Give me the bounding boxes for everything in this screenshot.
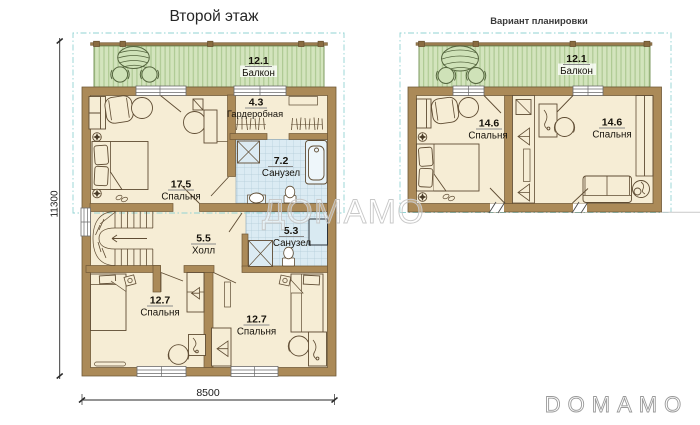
svg-text:Балкон: Балкон — [242, 68, 275, 79]
svg-text:12.1: 12.1 — [566, 53, 587, 65]
svg-text:14.6: 14.6 — [479, 118, 500, 130]
svg-text:DOMAMO: DOMAMO — [545, 392, 688, 417]
svg-text:Санузел: Санузел — [273, 238, 311, 249]
svg-text:Гардеробная: Гардеробная — [227, 109, 283, 119]
svg-text:5.5: 5.5 — [196, 233, 211, 245]
svg-text:Спальня: Спальня — [592, 130, 631, 141]
svg-text:Балкон: Балкон — [560, 66, 593, 77]
svg-text:12.1: 12.1 — [248, 55, 269, 67]
svg-text:ДОМАМО: ДОМАМО — [262, 193, 425, 231]
svg-text:4.3: 4.3 — [249, 97, 264, 109]
svg-text:7.2: 7.2 — [274, 155, 289, 167]
svg-text:17.5: 17.5 — [171, 179, 192, 191]
svg-text:11300: 11300 — [50, 190, 61, 218]
svg-text:Санузел: Санузел — [262, 168, 300, 179]
svg-text:Спальня: Спальня — [161, 192, 200, 203]
svg-text:Холл: Холл — [192, 246, 215, 257]
svg-text:Спальня: Спальня — [140, 308, 179, 319]
svg-text:Второй этаж: Второй этаж — [169, 8, 259, 25]
svg-text:12.7: 12.7 — [150, 295, 171, 307]
svg-text:Спальня: Спальня — [237, 327, 276, 338]
svg-text:14.6: 14.6 — [602, 117, 623, 129]
svg-text:8500: 8500 — [196, 387, 220, 399]
svg-text:12.7: 12.7 — [246, 314, 267, 326]
svg-text:Вариант планировки: Вариант планировки — [490, 15, 588, 26]
svg-text:Спальня: Спальня — [468, 131, 507, 142]
